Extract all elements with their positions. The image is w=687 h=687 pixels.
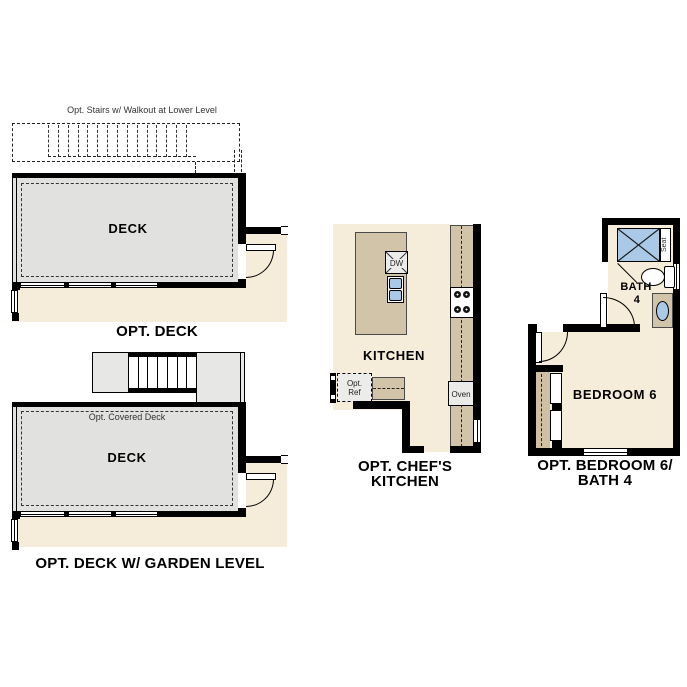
bedroom6-bath4-caption-line1: OPT. BEDROOM 6/ xyxy=(515,458,687,473)
wall-segment xyxy=(602,218,608,262)
window xyxy=(473,419,481,443)
wall-segment xyxy=(246,456,282,463)
kitchen-floor xyxy=(423,446,450,452)
sink-bowl xyxy=(389,278,402,289)
dishwasher-label: DW xyxy=(388,259,405,268)
wall-segment xyxy=(552,403,562,410)
vanity-sink xyxy=(656,301,669,321)
ref-label-line2: Ref xyxy=(338,388,371,397)
wall-segment xyxy=(673,218,680,456)
burner-icon xyxy=(463,291,470,298)
chefs-kitchen-caption-line2: KITCHEN xyxy=(325,474,485,489)
window xyxy=(20,511,65,517)
shower xyxy=(617,228,660,262)
shower-x-icon xyxy=(618,229,659,261)
covered-deck-note: Opt. Covered Deck xyxy=(47,413,207,422)
wall-segment xyxy=(12,282,20,290)
floorplan-canvas: Opt. Stairs w/ Walkout at Lower Level DE… xyxy=(0,0,687,687)
closet-rod-dashed-line xyxy=(541,374,542,446)
closet xyxy=(536,372,550,448)
wall-segment xyxy=(534,365,563,372)
chefs-kitchen-caption-line1: OPT. CHEF'S xyxy=(325,459,485,474)
wall-segment xyxy=(402,401,410,453)
cooktop xyxy=(450,287,474,318)
door-opening xyxy=(238,243,246,280)
opt-deck-garden-caption: OPT. DECK W/ GARDEN LEVEL xyxy=(30,556,270,571)
wall-segment xyxy=(410,446,424,453)
wall-end-tick xyxy=(281,455,288,464)
dashed-connector xyxy=(241,150,242,172)
window xyxy=(68,511,112,517)
wall-end-tick xyxy=(331,395,335,399)
window xyxy=(68,282,112,288)
wall-segment xyxy=(450,446,481,453)
window xyxy=(115,282,158,288)
burner-icon xyxy=(454,306,461,313)
counter-dashed-line xyxy=(373,388,404,389)
stairs-note: Opt. Stairs w/ Walkout at Lower Level xyxy=(27,106,257,115)
interior-floor xyxy=(12,517,287,547)
interior-floor xyxy=(12,288,287,322)
kitchen-floor xyxy=(410,410,450,446)
deck-room-label: DECK xyxy=(78,222,178,235)
counter-dashed-line xyxy=(461,226,462,452)
stair-treads xyxy=(128,353,196,392)
bath-label: BATH xyxy=(606,282,666,293)
stair-treads-baseline xyxy=(48,156,196,157)
window xyxy=(115,511,158,517)
sink-bowl xyxy=(389,290,402,301)
bedroom-room-label: BEDROOM 6 xyxy=(555,388,675,401)
wall-segment xyxy=(246,227,282,234)
opt-refrigerator: Opt. Ref xyxy=(337,373,372,402)
wall-end-tick xyxy=(331,376,335,380)
door-opening xyxy=(238,472,246,509)
opt-deck-caption: OPT. DECK xyxy=(57,324,257,339)
window xyxy=(583,448,628,456)
wall-segment xyxy=(12,313,19,321)
wall-segment xyxy=(16,407,17,511)
dashed-connector xyxy=(234,150,235,172)
burner-icon xyxy=(454,291,461,298)
wall-end-tick xyxy=(281,226,288,235)
oven: Oven xyxy=(448,381,474,406)
window xyxy=(20,282,65,288)
dashed-connector xyxy=(195,162,196,173)
kitchen-room-label: KITCHEN xyxy=(344,349,444,362)
wall-segment xyxy=(16,178,17,282)
stair-treads xyxy=(48,125,196,157)
wall-segment xyxy=(552,440,562,448)
closet-door-panel xyxy=(550,410,562,441)
window xyxy=(11,519,18,542)
deck-room-label: DECK xyxy=(77,451,177,464)
wall-segment xyxy=(12,511,20,519)
shower-seat: Seat xyxy=(660,228,671,262)
window xyxy=(11,290,18,313)
bedroom6-bath4-caption-line2: BATH 4 xyxy=(515,473,687,488)
wall-segment xyxy=(602,218,680,225)
ref-label-line1: Opt. xyxy=(338,379,371,388)
burner-icon xyxy=(463,306,470,313)
wall-segment xyxy=(12,542,19,550)
wall-segment xyxy=(240,353,241,403)
stair-landing xyxy=(196,352,245,403)
dishwasher: DW xyxy=(385,251,408,274)
